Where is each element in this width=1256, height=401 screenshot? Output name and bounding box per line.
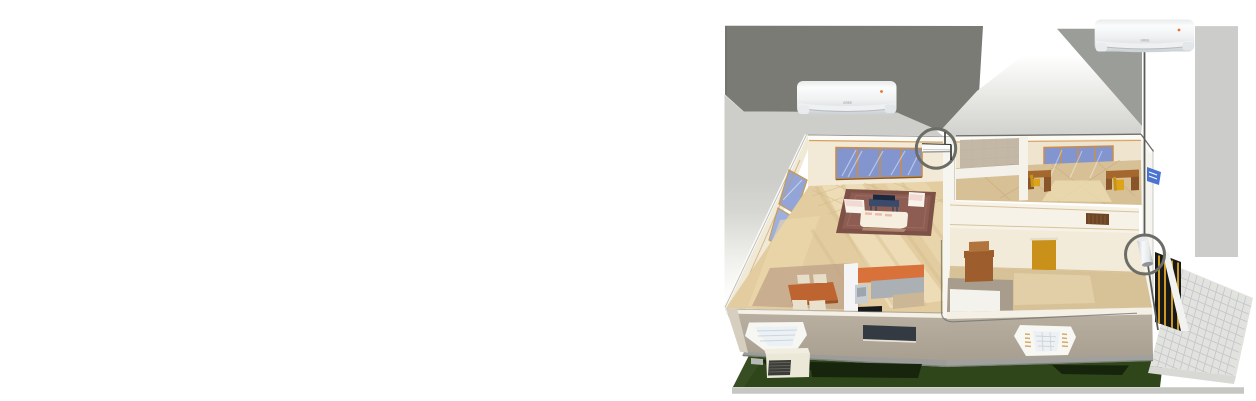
svg-text:GREE: GREE xyxy=(1140,39,1149,43)
svg-text:GREE: GREE xyxy=(843,101,852,105)
